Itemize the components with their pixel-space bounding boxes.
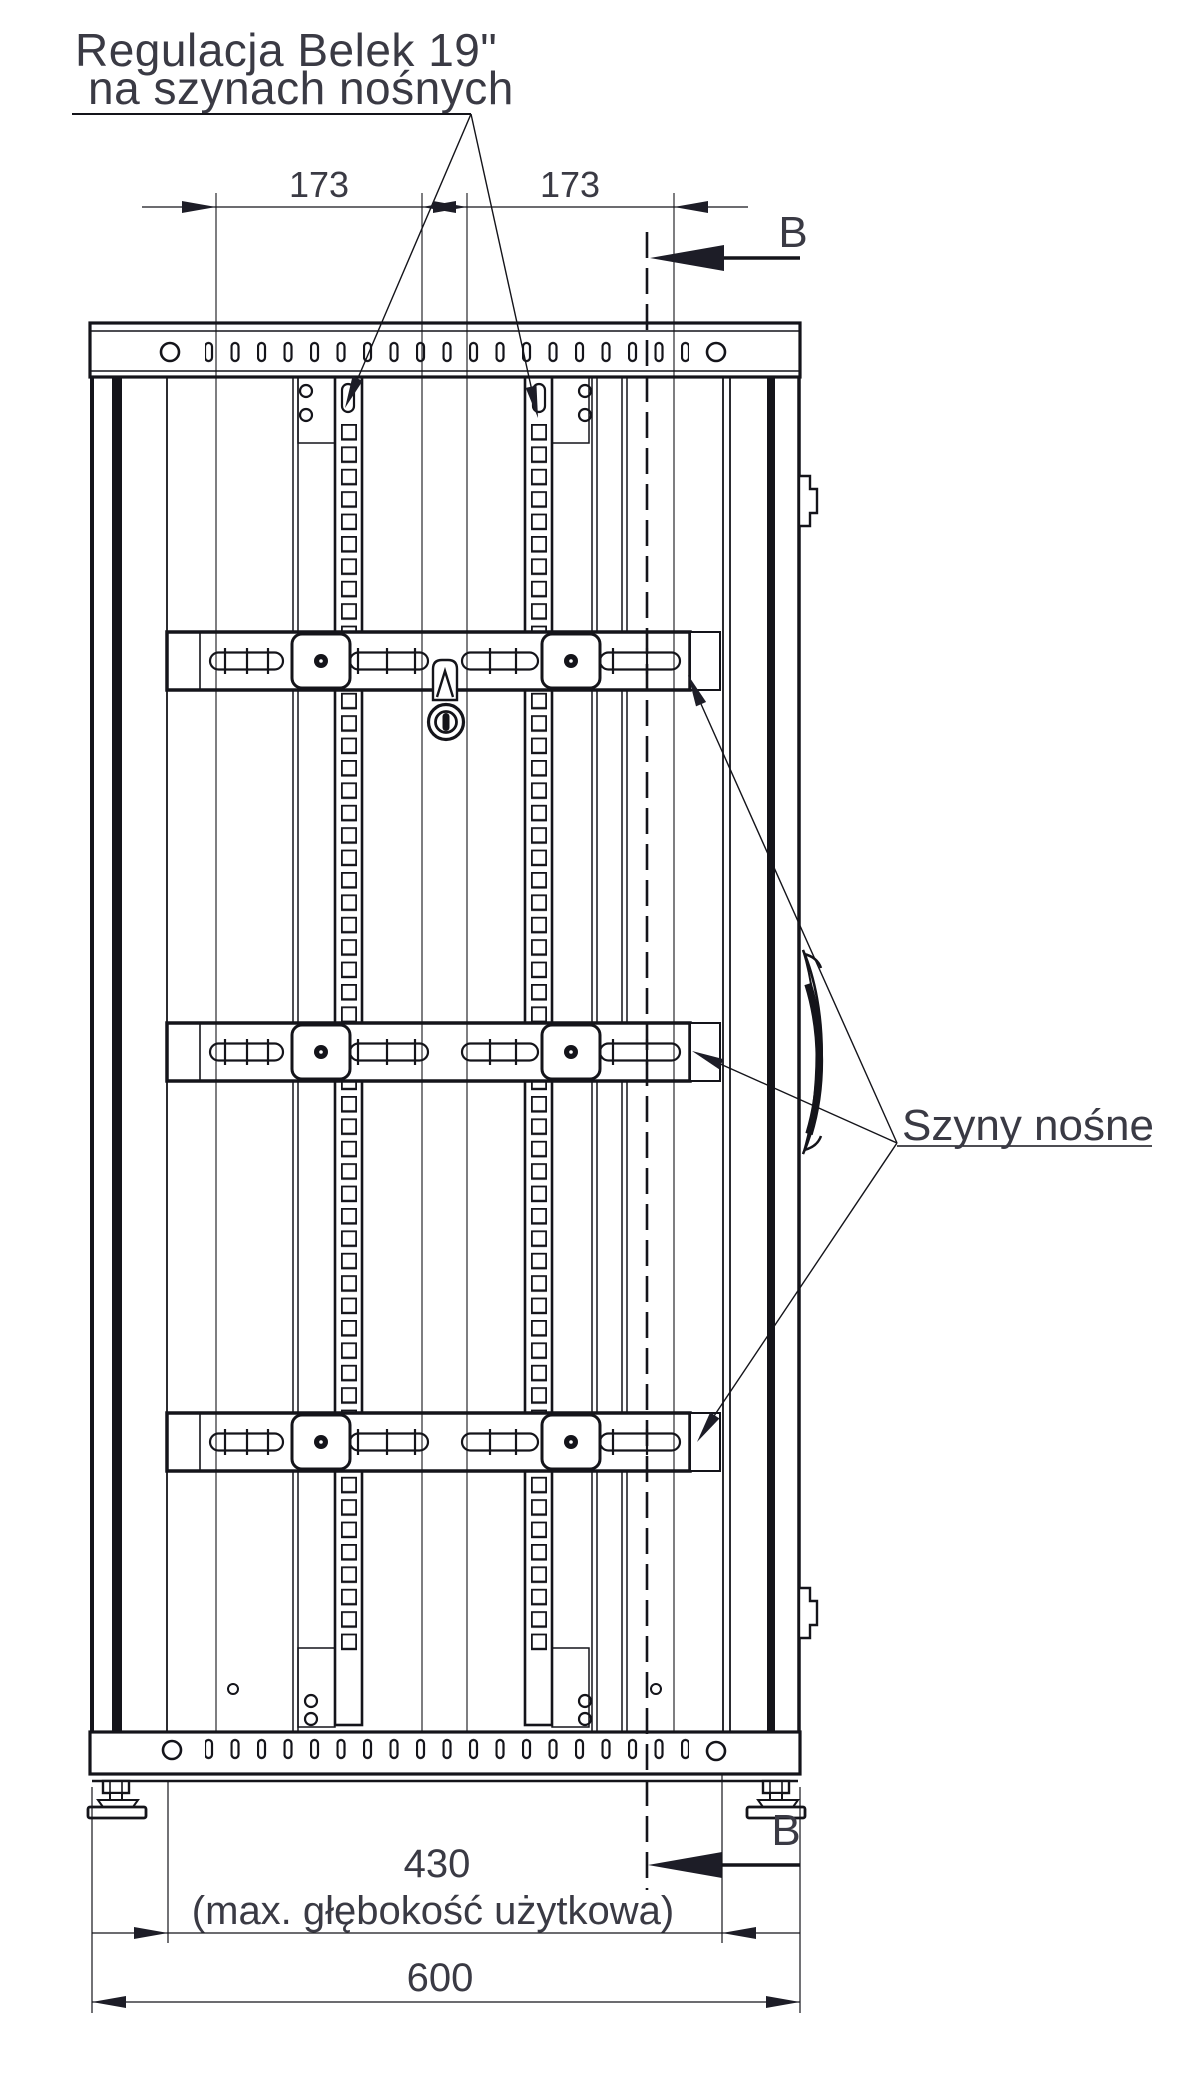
leveling-foot-left	[88, 1781, 146, 1818]
drawing-canvas: Regulacja Belek 19" na szynach nośnych 1…	[0, 0, 1179, 2079]
left-wall-profile-bar	[112, 377, 122, 1732]
dim-arrow-600-right	[766, 1996, 800, 2008]
lock-key-slot	[443, 713, 450, 731]
lock-escutcheon	[433, 660, 457, 700]
base-hole-right	[707, 1742, 725, 1760]
section-label-bottom: B	[771, 1806, 800, 1855]
dim-value-right: 173	[540, 164, 600, 205]
panel-hole-right	[651, 1684, 661, 1694]
dim-arrow-430-left	[134, 1927, 168, 1939]
support-rail-3	[167, 1413, 720, 1471]
support-rails-label: Szyny nośne	[902, 1101, 1154, 1150]
cap-hole-right	[707, 343, 725, 361]
dim-arrow-outer-right	[674, 201, 708, 213]
dim-note-430: (max. głębokość użytkowa)	[192, 1889, 674, 1933]
annotation-line2: na szynach nośnych	[88, 62, 514, 114]
section-marker-bottom: B	[648, 1806, 801, 1878]
door-handle	[803, 950, 822, 1154]
bottom-base	[90, 1732, 800, 1781]
ventilation-slots-top	[205, 342, 689, 363]
section-label-top: B	[778, 208, 807, 257]
support-rails-annotation: Szyny nośne	[688, 675, 1154, 1442]
leader-rail-3	[712, 1143, 897, 1419]
hinge-bottom	[799, 1588, 817, 1638]
left-wall	[92, 377, 167, 1732]
hinge-top	[799, 476, 817, 526]
reference-lines	[216, 193, 674, 1732]
dim-value-left: 173	[289, 164, 349, 205]
dim-arrow-600-left	[92, 1996, 126, 2008]
dim-value-600: 600	[407, 1956, 474, 2000]
dim-value-430: 430	[404, 1842, 471, 1886]
dimension-rail-spacing: 173 173	[142, 164, 748, 213]
support-rail-2	[167, 1023, 720, 1081]
section-arrow-bottom	[648, 1852, 722, 1878]
base-hole-left	[163, 1741, 181, 1759]
door-skin-bar	[767, 377, 775, 1732]
dim-arrow-430-right	[722, 1927, 756, 1939]
beam-bottom-bracket-right	[552, 1648, 589, 1727]
ventilation-slots-bottom	[205, 1739, 689, 1760]
top-cap	[90, 323, 800, 377]
cap-hole-left	[161, 343, 179, 361]
technical-drawing-rack-cabinet: Regulacja Belek 19" na szynach nośnych 1…	[0, 0, 1179, 2079]
panel-hole-left	[228, 1684, 238, 1694]
cabinet-side-view	[88, 323, 822, 1818]
section-arrow-top	[650, 245, 724, 271]
dim-arrow-outer-left	[182, 201, 216, 213]
